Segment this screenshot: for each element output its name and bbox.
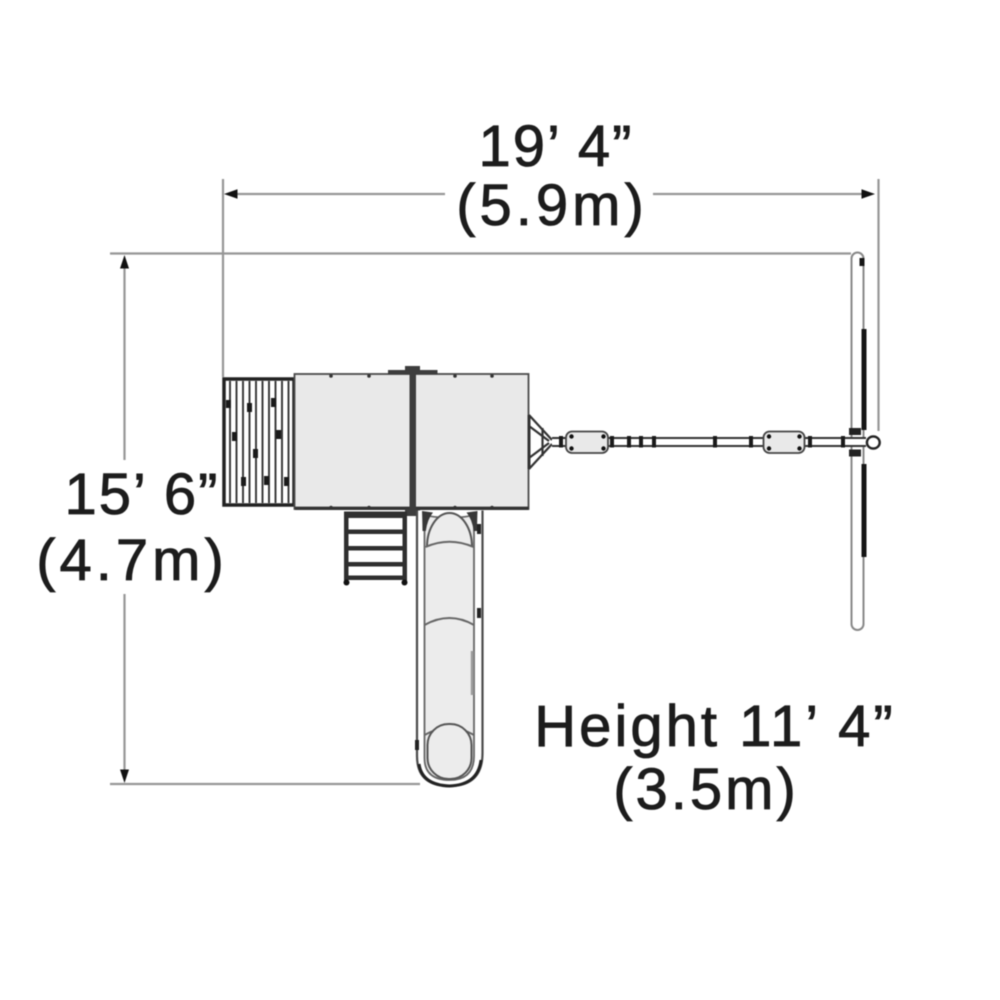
svg-text:15’ 6”: 15’ 6” — [65, 462, 220, 527]
svg-text:Height 11’ 4”: Height 11’ 4” — [534, 694, 895, 759]
svg-text:19’ 4”: 19’ 4” — [479, 114, 634, 179]
svg-text:(4.7m): (4.7m) — [36, 528, 228, 593]
svg-text:(5.9m): (5.9m) — [456, 173, 648, 238]
svg-text:(3.5m): (3.5m) — [613, 757, 799, 822]
